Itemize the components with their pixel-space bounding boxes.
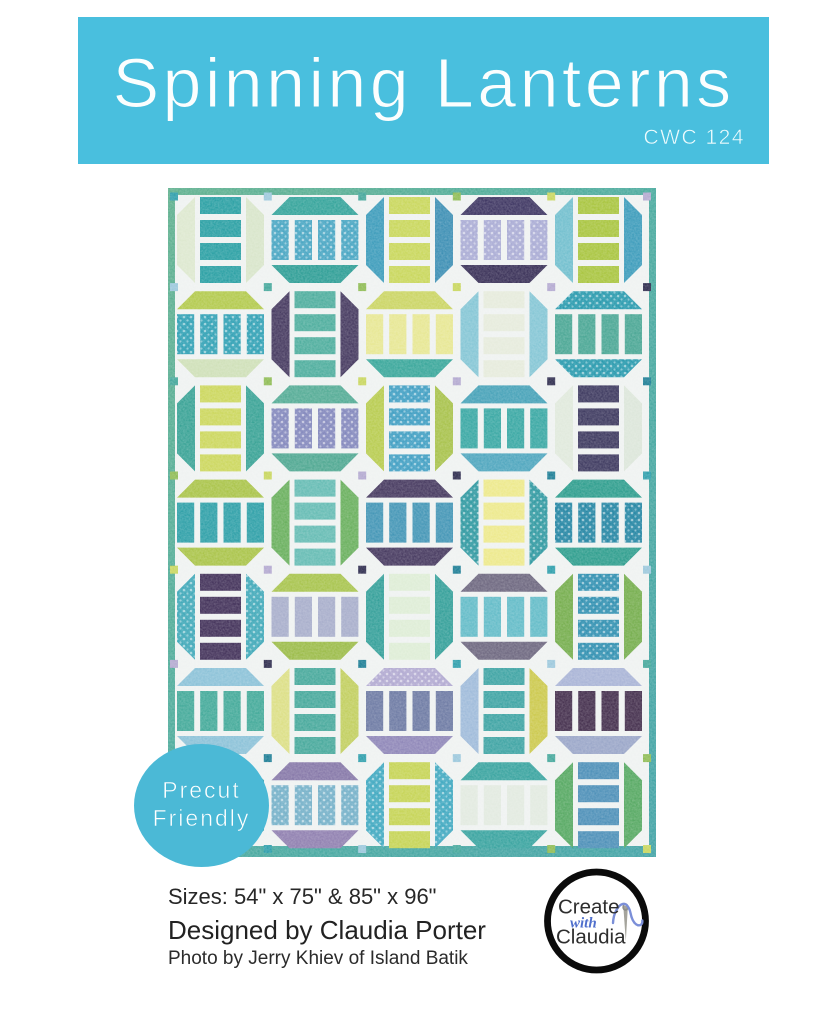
svg-text:Claudia: Claudia <box>556 926 626 949</box>
